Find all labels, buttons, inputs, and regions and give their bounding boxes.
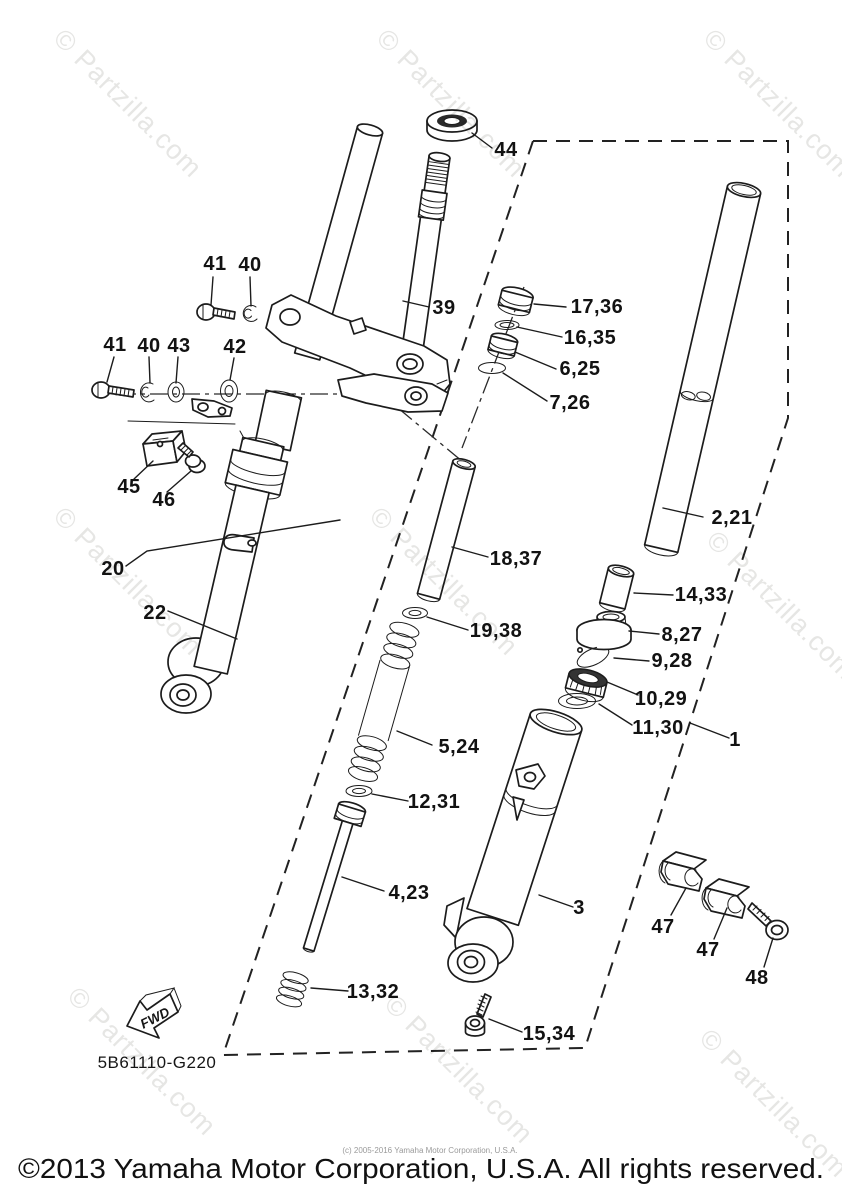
ring-42: [221, 380, 238, 402]
cap-bolt-17-36: [497, 284, 535, 318]
spring-seat-19-38: [403, 608, 428, 619]
rebound-spring-13-32: [275, 969, 309, 1009]
callout-16-35[interactable]: 16,35: [564, 327, 617, 349]
front-fork-exploded-diagram: 44 41 40 41 40 43 42 39 45 46 20 22 17,3…: [0, 0, 842, 1200]
callout-46[interactable]: 46: [152, 489, 175, 511]
callout-6-25[interactable]: 6,25: [560, 358, 601, 380]
screw-46: [178, 443, 205, 473]
footer-copyright: ©2013 Yamaha Motor Corporation, U.S.A. A…: [18, 1153, 824, 1184]
callout-11-30[interactable]: 11,30: [632, 717, 683, 739]
callout-17-36[interactable]: 17,36: [571, 296, 624, 318]
callout-47b[interactable]: 47: [696, 939, 719, 961]
watermark: © Partzilla.com: [48, 23, 208, 183]
callout-15-34[interactable]: 15,34: [523, 1023, 576, 1045]
bolt-15-34: [466, 994, 492, 1036]
callout-40-top[interactable]: 40: [238, 254, 261, 276]
damper-rod-4-23: [295, 799, 367, 956]
bolt-48: [748, 903, 788, 940]
washer-12-31: [346, 786, 372, 797]
callout-3[interactable]: 3: [573, 897, 585, 919]
bolt-41-top: [197, 304, 235, 320]
watermark: © Partzilla.com: [379, 989, 539, 1149]
callout-41-top[interactable]: 41: [203, 253, 226, 275]
callout-18-37[interactable]: 18,37: [490, 548, 543, 570]
callout-7-26[interactable]: 7,26: [550, 392, 591, 414]
inner-tube-2-21: [643, 180, 762, 559]
callout-8-27[interactable]: 8,27: [662, 624, 703, 646]
steering-stem-39: [399, 151, 452, 357]
bolt-41: [92, 382, 134, 398]
clamp-47a: [659, 852, 706, 891]
callout-41[interactable]: 41: [103, 334, 126, 356]
fork-spring-5-24: [347, 619, 421, 784]
right-axle-hole: [458, 951, 485, 974]
fwd-arrow: FWD: [127, 988, 181, 1038]
watermark: © Partzilla.com: [48, 501, 208, 661]
callout-1[interactable]: 1: [729, 729, 741, 751]
callout-43[interactable]: 43: [167, 335, 190, 357]
watermark: © Partzilla.com: [371, 23, 531, 183]
washer-40: [140, 383, 154, 402]
callout-2-21[interactable]: 2,21: [712, 507, 753, 529]
callout-47a[interactable]: 47: [651, 916, 674, 938]
callout-40[interactable]: 40: [137, 335, 160, 357]
callout-9-28[interactable]: 9,28: [652, 650, 693, 672]
callout-5-24[interactable]: 5,24: [439, 736, 480, 758]
slide-bushing-14-33: [598, 563, 634, 614]
washer-11-30: [559, 694, 596, 709]
oring-43: [168, 382, 184, 402]
left-axle-hole: [170, 684, 196, 706]
callout-48[interactable]: 48: [745, 967, 768, 989]
callout-10-29[interactable]: 10,29: [635, 688, 688, 710]
parts-diagram-page: 44 41 40 41 40 43 42 39 45 46 20 22 17,3…: [0, 0, 842, 1200]
seal-spacer-8-27: [577, 612, 631, 650]
outer-tube-3: [467, 704, 585, 925]
spacer-6-25: [487, 331, 519, 361]
callout-42[interactable]: 42: [223, 336, 246, 358]
callout-4-23[interactable]: 4,23: [389, 882, 430, 904]
callout-14-33[interactable]: 14,33: [675, 584, 728, 606]
oring-16-35: [495, 321, 519, 330]
callout-45[interactable]: 45: [117, 476, 140, 498]
callout-39[interactable]: 39: [432, 297, 455, 319]
callout-12-31[interactable]: 12,31: [408, 791, 461, 813]
watermark: © Partzilla.com: [698, 23, 842, 183]
ering-40-top: [243, 305, 257, 321]
